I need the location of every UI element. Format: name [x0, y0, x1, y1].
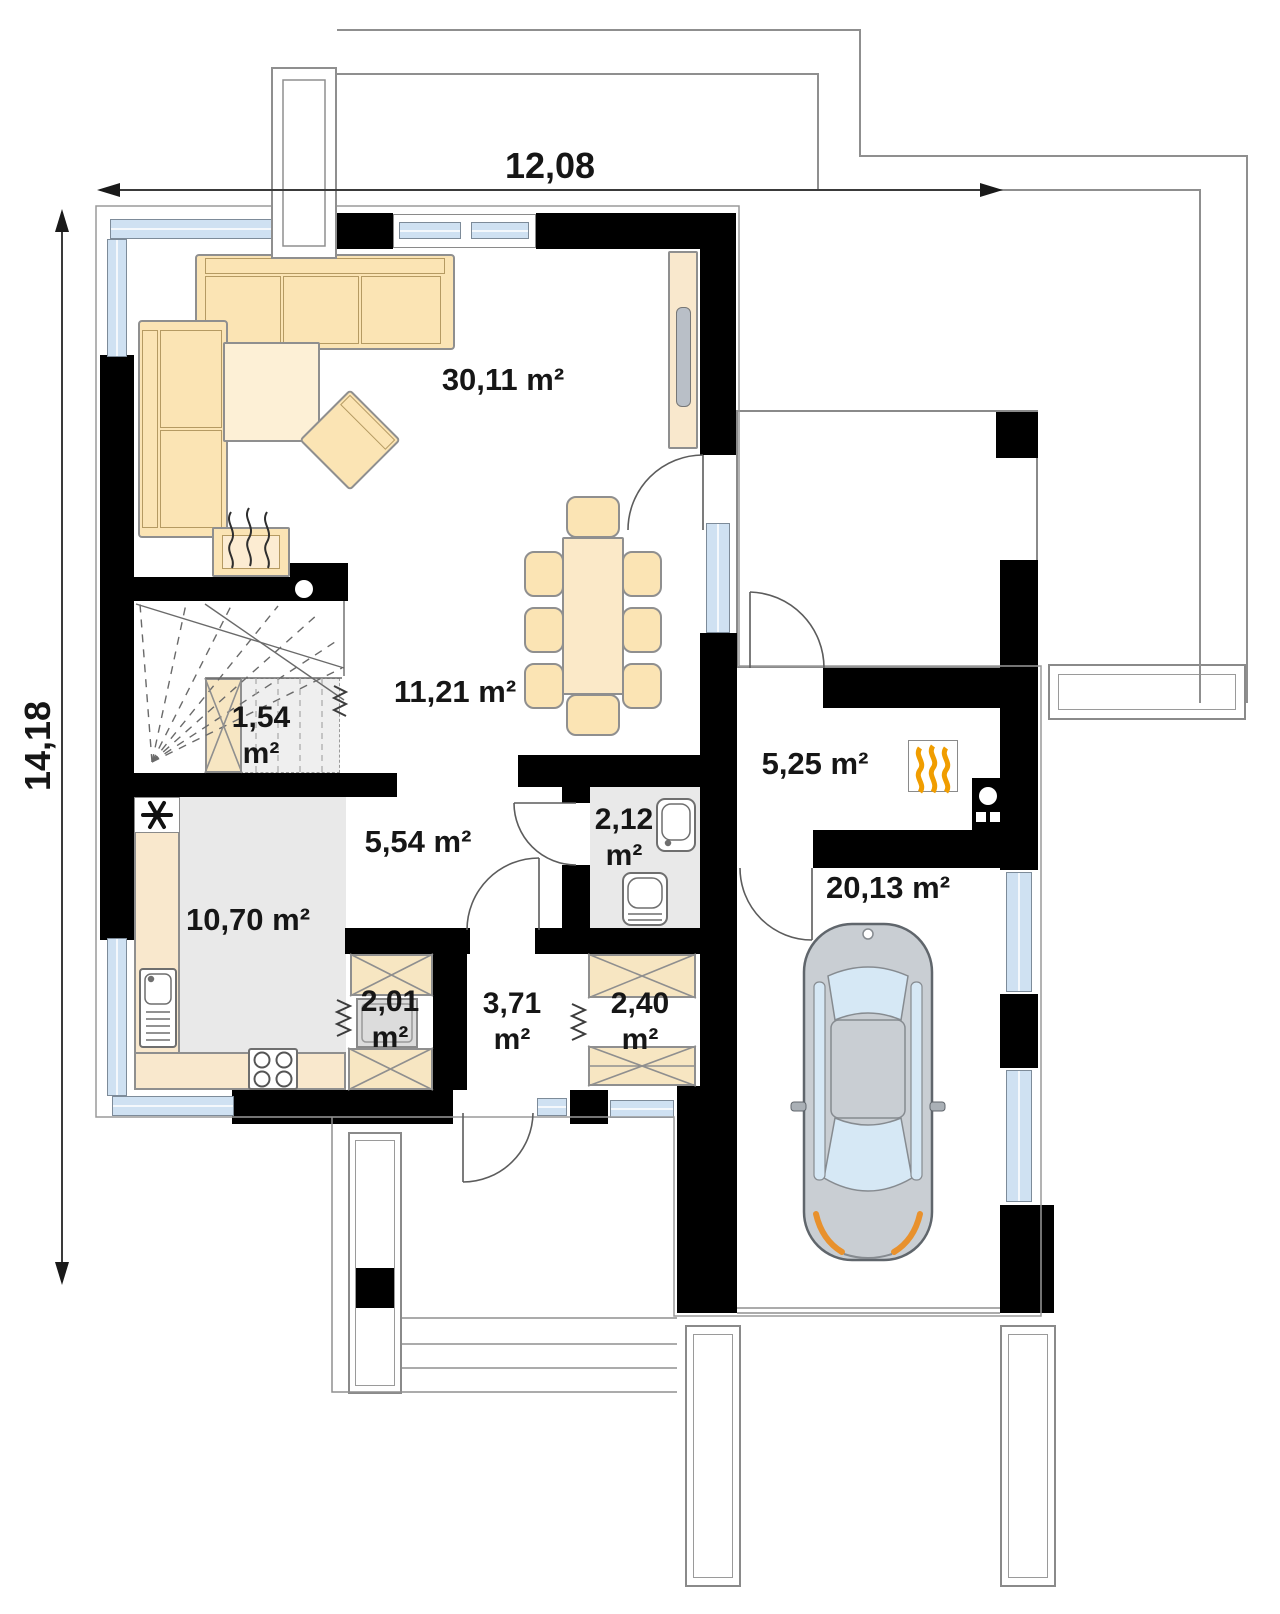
window-top-corner [110, 219, 282, 239]
window-top-2 [471, 222, 529, 239]
wall-kitchen-bottom [232, 1090, 453, 1124]
sofa-small [138, 320, 228, 538]
kitchen-counter-bottom [134, 1052, 346, 1090]
wall-bath-left-a [562, 787, 590, 803]
coffee-table [223, 342, 320, 442]
driveway-pillar-right-inner [1008, 1334, 1048, 1578]
understairs-area-value: 1,54 [232, 700, 290, 736]
wall-boiler-top [823, 668, 1004, 708]
terrace [736, 410, 1038, 668]
dimension-height-label: 14,18 [17, 701, 59, 791]
window-bottom-left [112, 1096, 234, 1116]
bathroom-area-unit: m² [595, 838, 653, 874]
wall-wing-right-mid [1000, 994, 1038, 1068]
dining-chair [566, 496, 620, 538]
wall-top-left-segment [282, 213, 393, 249]
stove [248, 1048, 298, 1090]
kitchen-floor [178, 797, 346, 1090]
wall-closet-top [345, 928, 470, 954]
floor-plan: 12,08 14,18 30,11 m² 11,21 m² 5,54 m² 10… [0, 0, 1280, 1614]
wardrobe-area-unit: m² [611, 1022, 669, 1058]
dining-chair [524, 663, 564, 709]
wall-bath-top [518, 755, 700, 787]
kitchen-sink [139, 968, 177, 1048]
vestibule-area-value: 3,71 [483, 986, 541, 1022]
living-room-area-label: 30,11 m² [442, 362, 564, 398]
window-garage-1 [1006, 872, 1032, 992]
furnace-box [908, 740, 958, 792]
understairs-area-unit: m² [232, 736, 290, 772]
wall-boiler-bottom [813, 830, 1003, 868]
fridge [134, 797, 180, 833]
wall-wardrobe-top [535, 928, 700, 954]
sofa-large [195, 254, 455, 350]
patio-slider-handle [676, 307, 691, 407]
garage-area-label: 20,13 m² [826, 870, 950, 906]
washbasin [656, 798, 696, 852]
dining-chair [524, 607, 564, 653]
boiler-icon [972, 778, 1003, 830]
wall-stairs-bottom [133, 773, 397, 797]
wall-wing-right-corner [1000, 1205, 1054, 1313]
window-top-1 [399, 222, 461, 239]
dining-chair [622, 607, 662, 653]
wall-garage-pillar-left [677, 1205, 737, 1313]
closet-area-unit: m² [361, 1020, 419, 1056]
terrace-pillar [996, 412, 1038, 458]
closet-area-value: 2,01 [361, 984, 419, 1020]
boiler-room-area-label: 5,25 m² [762, 746, 869, 782]
hallway-area-label: 5,54 m² [365, 824, 472, 860]
wall-closet-right [433, 954, 467, 1090]
porch-pillar-inner [355, 1140, 395, 1386]
vestibule-area-label: 3,71 m² [483, 986, 541, 1058]
wardrobe-area-label: 2,40 m² [611, 986, 669, 1058]
bathroom-area-value: 2,12 [595, 802, 653, 838]
porch-pillar-core [356, 1268, 394, 1308]
wall-entry-pier [570, 1090, 608, 1124]
fireplace [212, 527, 290, 577]
wall-bath-left-b [562, 865, 590, 928]
wardrobe-area-value: 2,40 [611, 986, 669, 1022]
window-garage-2 [1006, 1070, 1032, 1202]
window-dining-right [706, 523, 730, 633]
dining-area-label: 11,21 m² [394, 674, 516, 710]
kitchen-counter-left [134, 830, 180, 1090]
vestibule-area-unit: m² [483, 1022, 541, 1058]
window-entry-side [610, 1100, 674, 1118]
dining-table [562, 537, 624, 695]
dining-chair [524, 551, 564, 597]
window-left-upper [107, 239, 127, 357]
garage-door-threshold [737, 1308, 1000, 1313]
dining-chair [622, 551, 662, 597]
dining-chair [566, 694, 620, 736]
dining-chair [622, 663, 662, 709]
side-sill-inner [1058, 674, 1236, 710]
closet-area-label: 2,01 m² [361, 984, 419, 1056]
driveway-pillar-left-inner [693, 1334, 733, 1578]
bathroom-area-label: 2,12 m² [595, 802, 653, 874]
toilet [622, 872, 668, 926]
wall-left [100, 355, 134, 940]
wall-fireplace-corner [290, 563, 348, 601]
window-left-lower [107, 938, 127, 1096]
understairs-area-label: 1,54 m² [232, 700, 290, 772]
wall-right-upper [700, 213, 736, 455]
window-entry-small [537, 1098, 567, 1116]
dimension-width-label: 12,08 [505, 145, 595, 187]
car-icon [791, 924, 945, 1260]
wall-wing-right-upper [1000, 560, 1038, 870]
kitchen-area-label: 10,70 m² [186, 902, 310, 938]
